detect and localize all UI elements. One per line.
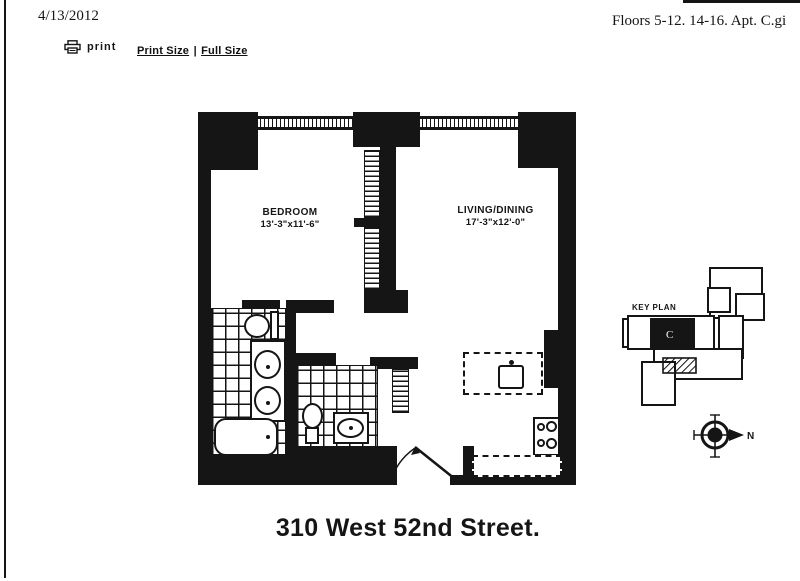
top-right-rule [683,0,800,3]
stove [533,417,560,456]
burner-small-1 [537,423,545,431]
bath1-sink-1-drain [266,365,270,369]
living-dining-label: LIVING/DINING 17'-3"x12'-0" [433,204,558,229]
bedroom-name: BEDROOM [230,206,350,219]
living-dining-name: LIVING/DINING [433,204,558,217]
kitchen-closet-louver [392,369,409,413]
window-band-bedroom [256,116,358,130]
burner-large-1 [546,421,557,432]
full-size-link[interactable]: Full Size [201,45,247,57]
header-floors-text: Floors 5-12. 14-16. Apt. C.gi [612,13,800,30]
floor-plan: BEDROOM 13'-3"x11'-6" LIVING/DINING 17'-… [198,112,578,485]
key-plan: C KEY PLAN [622,262,800,412]
compass-north-label: N [747,431,754,442]
page-left-border [4,0,6,578]
entry-door [382,442,466,485]
bath1-top-wall-b [294,300,334,313]
toilet2-bowl [302,403,323,429]
toilet1-bowl [244,314,270,338]
keyplan-elevator-core [663,358,696,373]
print-size-link[interactable]: Print Size [137,45,189,57]
wall-bottom-left [208,454,296,485]
burner-large-2 [546,438,557,449]
bath1-sink-2-drain [266,401,270,405]
link-divider: | [194,45,197,57]
burner-small-2 [537,439,545,447]
wall-divider-foot [364,290,408,313]
page-date: 4/13/2012 [38,8,99,25]
print-label: print [87,41,116,53]
closet-stub [354,218,380,227]
toilet2-base [305,427,319,444]
printer-icon [64,40,81,54]
column-top-left [198,112,258,170]
column-top-right [518,112,568,168]
living-dining-dims: 17'-3"x12'-0" [433,217,558,229]
kitchen-bottom-counter [472,455,562,477]
keyplan-unit-letter: C [666,329,673,341]
closet-louver-upper [364,150,380,218]
print-button[interactable]: print [64,40,116,54]
compass: N [688,408,763,466]
window-band-living [418,116,520,130]
page-title: 310 West 52nd Street. [158,514,658,543]
bedroom-label: BEDROOM 13'-3"x11'-6" [230,206,350,231]
kitchen-faucet [509,360,514,365]
bathtub-drain [266,435,270,439]
bedroom-dims: 13'-3"x11'-6" [230,219,350,231]
kitchen-sink [498,365,524,389]
wall-divider [380,142,396,292]
toilet1-tank [270,311,279,340]
closet-louver-lower [364,227,380,290]
refrigerator [544,330,561,388]
bath2-sink-drain [349,426,353,430]
keyplan-label: KEY PLAN [632,303,676,312]
wall-bottom-middle [286,446,397,485]
